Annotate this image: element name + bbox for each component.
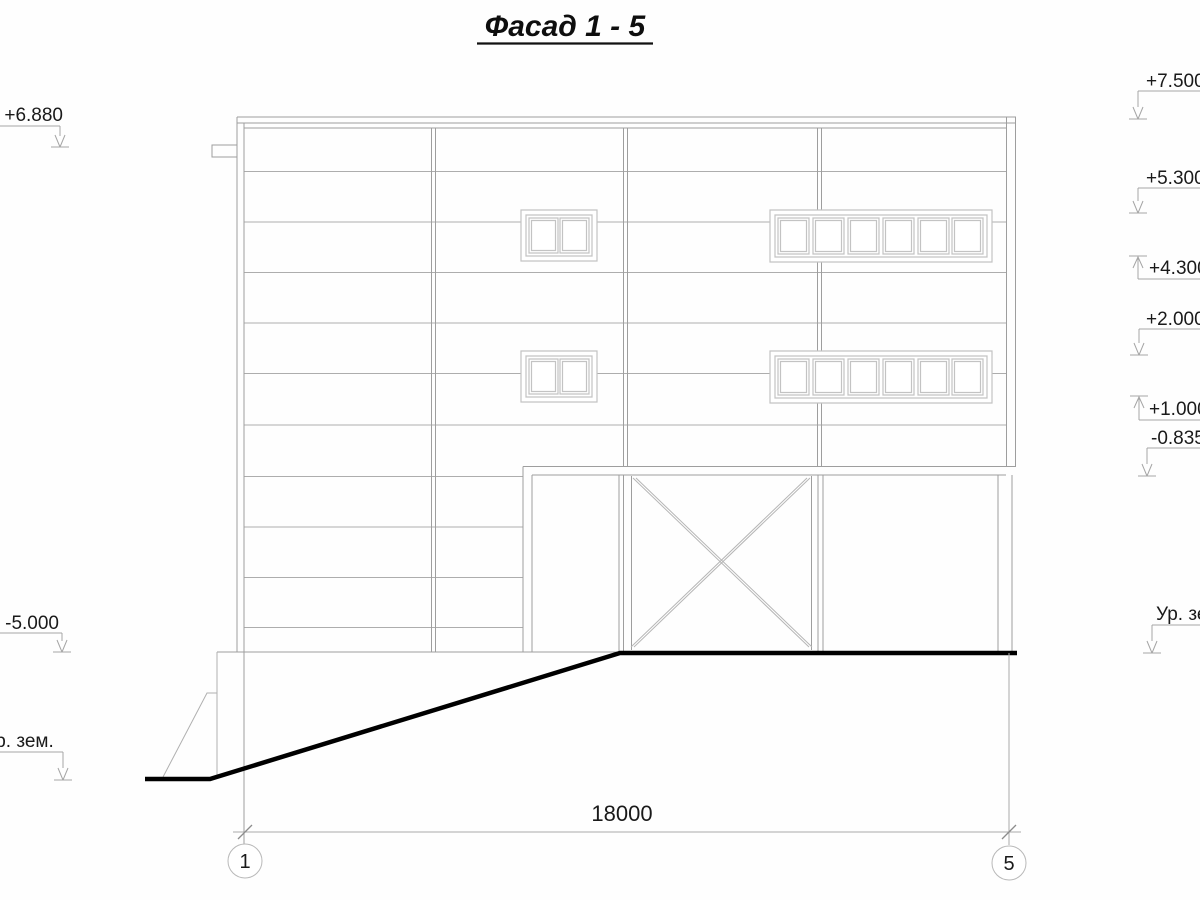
elevation-label: -5.000 [5,613,59,634]
elevation-label: Ур. зем. [0,731,54,752]
elevation-label: +7.500 [1146,71,1200,92]
elevation-mark-plus5300: +5.300 [1129,168,1200,213]
dimension-18000: 18000 1 5 [228,653,1026,880]
ground-line [145,653,1017,779]
foundation-outline [163,652,217,777]
facade-drawing-sheet: Фасад 1 - 5 18000 1 5 +6.880 -5.000 Ур. [0,0,1200,900]
elevation-label: +6.880 [4,105,63,126]
elevation-arrow-icon [0,126,69,147]
elevation-mark-plus6880: +6.880 [0,105,69,147]
elevation-label: +1.000 [1149,399,1200,420]
window-ribbon-lower [770,351,992,403]
window-double-upper [521,210,597,261]
elevation-arrow-icon [1129,188,1200,213]
elevation-label: +2.000 [1146,309,1200,330]
window-double-lower [521,351,597,402]
elevation-arrow-icon [1138,448,1200,476]
elevation-mark-ground-left: Ур. зем. [0,731,72,780]
elevation-mark-minus0835: -0.835 [1138,428,1200,476]
elevation-mark-plus1000: +1.000 [1130,396,1200,420]
axis-number-1: 1 [239,851,250,873]
elevation-label: +5.300 [1146,168,1200,189]
elevation-mark-minus5000: -5.000 [0,613,71,652]
elevation-arrow-icon [0,633,71,652]
drawing-title: Фасад 1 - 5 [485,10,647,43]
elevation-mark-plus7500: +7.500 [1129,71,1200,119]
elevation-mark-ground-right: Ур. зем. [1143,604,1200,653]
elevation-mark-plus4300: +4.300 [1129,256,1200,279]
elevation-label: +4.300 [1149,258,1200,279]
window-ribbon-upper [770,210,992,262]
elevation-mark-plus2000: +2.000 [1130,309,1200,355]
elevation-label: Ур. зем. [1156,604,1200,625]
elevation-label: -0.835 [1151,428,1200,449]
x-brace [631,478,812,647]
elevation-arrow-icon [1143,625,1200,653]
elevation-arrow-icon [1130,329,1200,355]
elevation-arrow-icon [1129,91,1200,119]
facade-drawing: Фасад 1 - 5 18000 1 5 +6.880 -5.000 Ур. [0,0,1200,900]
axis-number-5: 5 [1003,853,1014,875]
elevation-arrow-icon [0,752,72,780]
dimension-value: 18000 [591,801,652,826]
